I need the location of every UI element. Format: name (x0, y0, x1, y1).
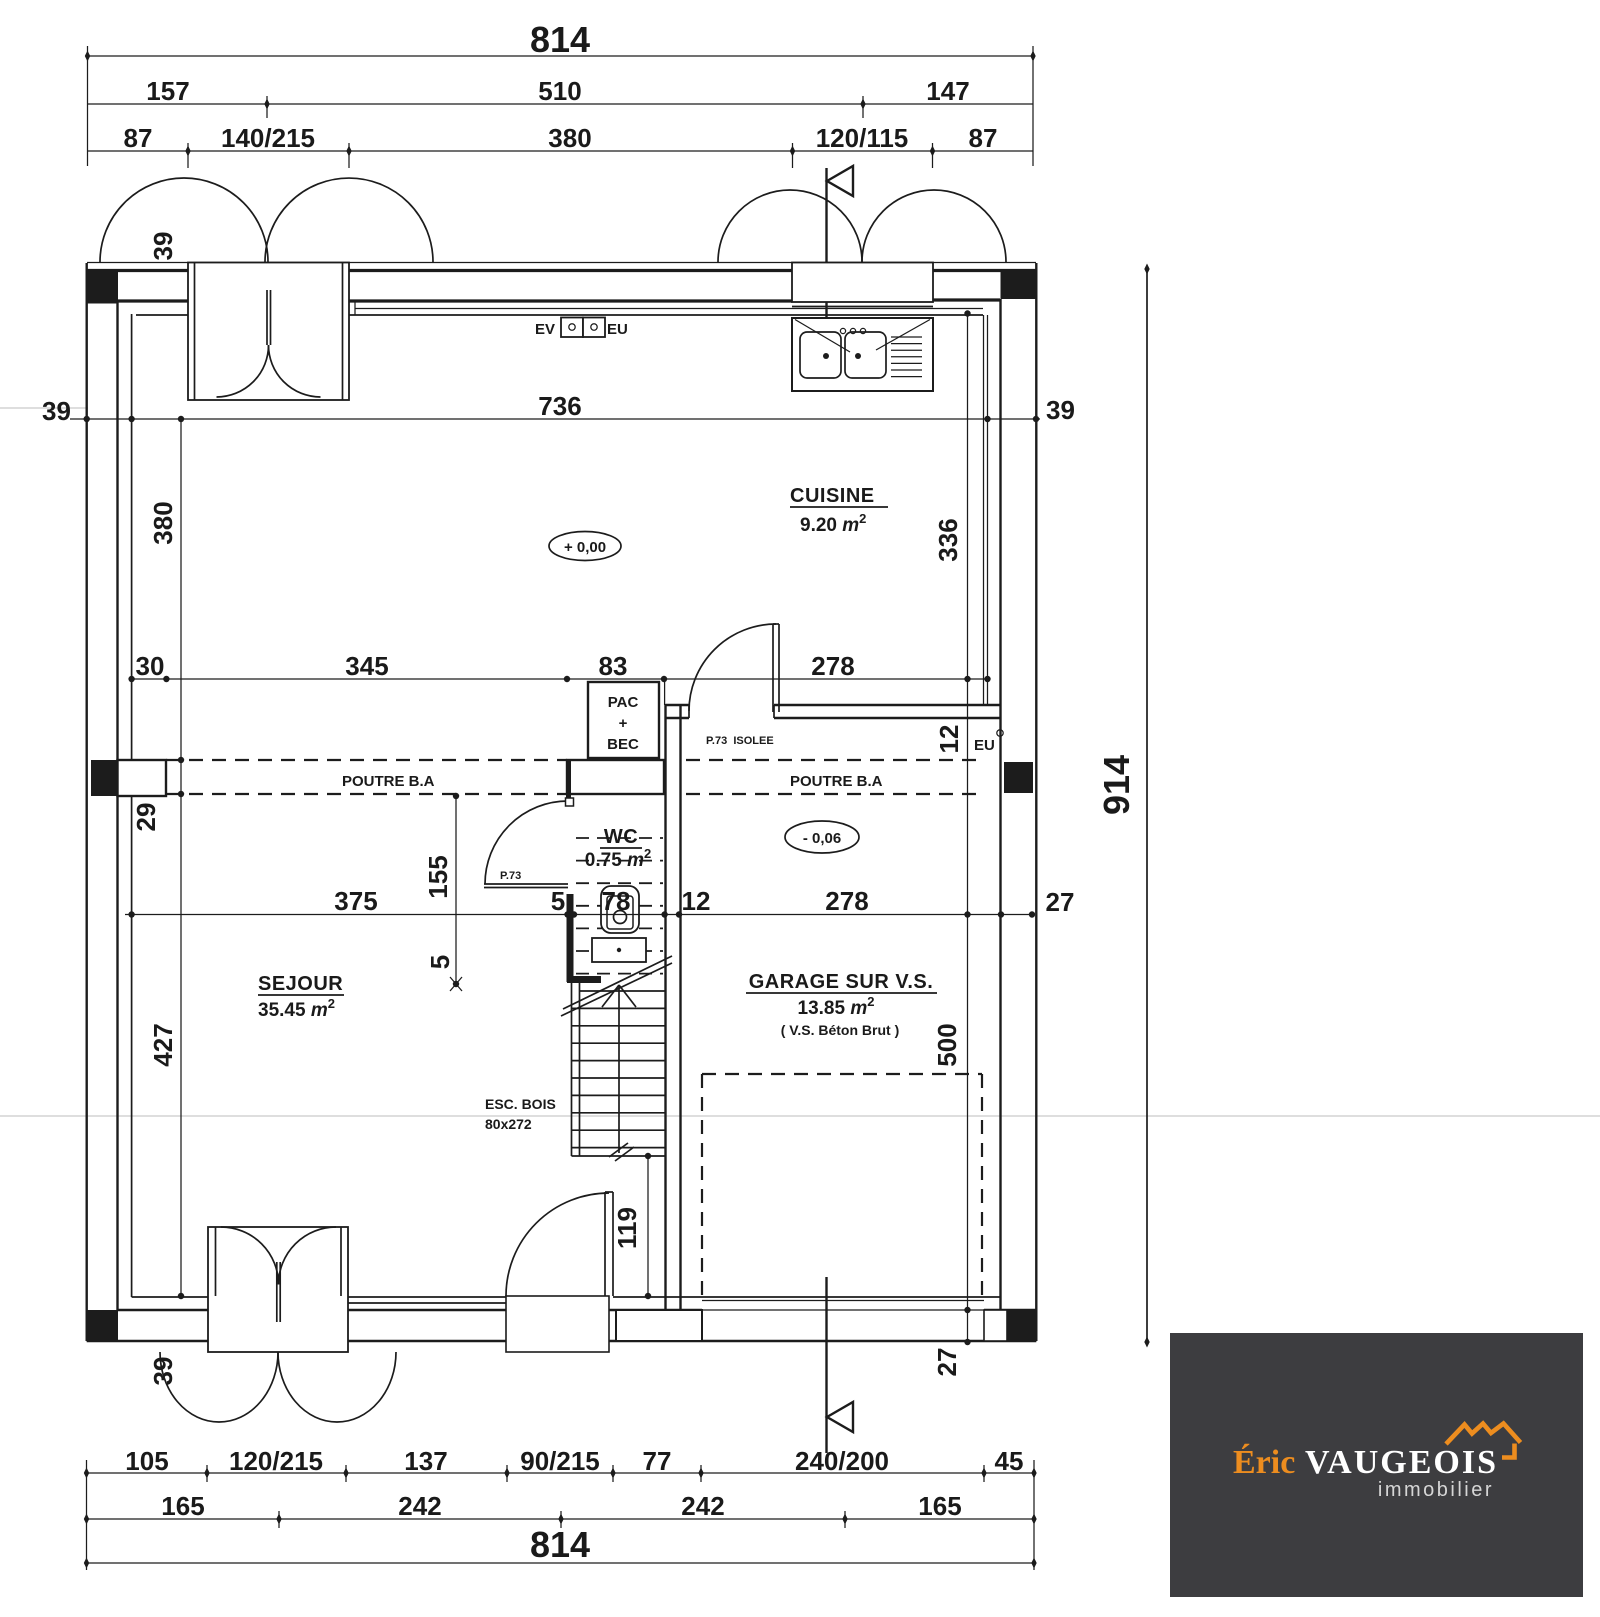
svg-text:147: 147 (926, 76, 969, 106)
svg-text:P.73: P.73 (500, 870, 521, 882)
svg-text:80x272: 80x272 (485, 1116, 532, 1132)
svg-text:165: 165 (161, 1491, 204, 1521)
svg-text:39: 39 (148, 232, 178, 261)
svg-text:90/215: 90/215 (520, 1446, 600, 1476)
svg-text:380: 380 (148, 501, 178, 544)
svg-text:POUTRE B.A: POUTRE B.A (790, 773, 883, 790)
svg-text:immobilier: immobilier (1378, 1479, 1494, 1501)
svg-text:137: 137 (404, 1446, 447, 1476)
svg-text:45: 45 (995, 1446, 1024, 1476)
svg-text:336: 336 (933, 518, 963, 561)
svg-text:29: 29 (131, 803, 161, 832)
svg-text:ESC. BOIS: ESC. BOIS (485, 1096, 556, 1112)
svg-text:35.45 m2: 35.45 m2 (258, 996, 335, 1021)
svg-text:814: 814 (530, 19, 590, 60)
svg-text:165: 165 (918, 1491, 961, 1521)
svg-text:120/115: 120/115 (816, 123, 909, 153)
svg-text:157: 157 (146, 76, 189, 106)
svg-text:39: 39 (1046, 395, 1075, 425)
svg-text:0.75 m2: 0.75 m2 (585, 846, 651, 871)
svg-text:P.73 ISOLEE: P.73 ISOLEE (706, 735, 774, 747)
svg-text:27: 27 (1046, 887, 1075, 917)
svg-text:EU: EU (974, 737, 995, 754)
svg-text:13.85 m2: 13.85 m2 (798, 994, 875, 1019)
svg-text:736: 736 (538, 391, 581, 421)
svg-text:814: 814 (530, 1524, 590, 1565)
svg-text:510: 510 (538, 76, 581, 106)
svg-text:240/200: 240/200 (795, 1446, 889, 1476)
svg-text:278: 278 (825, 886, 868, 916)
svg-text:155: 155 (423, 855, 453, 898)
svg-text:87: 87 (969, 123, 998, 153)
svg-text:375: 375 (334, 886, 377, 916)
svg-text:242: 242 (398, 1491, 441, 1521)
svg-text:78: 78 (602, 886, 631, 916)
svg-text:27: 27 (932, 1348, 962, 1377)
svg-text:SEJOUR: SEJOUR (258, 973, 343, 995)
svg-text:12: 12 (682, 886, 711, 916)
svg-text:278: 278 (811, 651, 854, 681)
svg-text:119: 119 (612, 1207, 642, 1249)
svg-text:77: 77 (643, 1446, 672, 1476)
svg-text:427: 427 (148, 1023, 178, 1066)
svg-text:30: 30 (136, 651, 165, 681)
svg-text:POUTRE B.A: POUTRE B.A (342, 773, 435, 790)
svg-text:Éric: Éric (1233, 1444, 1295, 1481)
svg-text:120/215: 120/215 (229, 1446, 323, 1476)
svg-text:105: 105 (125, 1446, 168, 1476)
svg-text:PAC: PAC (608, 694, 639, 711)
svg-text:CUISINE: CUISINE (790, 485, 875, 507)
svg-text:BEC: BEC (607, 736, 639, 753)
svg-text:140/215: 140/215 (221, 123, 315, 153)
svg-text:VAUGEOIS: VAUGEOIS (1305, 1444, 1498, 1481)
svg-text:83: 83 (599, 651, 628, 681)
svg-text:39: 39 (148, 1357, 178, 1386)
svg-text:+ 0,00: + 0,00 (564, 539, 606, 556)
svg-text:500: 500 (932, 1023, 962, 1066)
svg-text:914: 914 (1096, 755, 1137, 815)
svg-text:EU: EU (607, 321, 628, 338)
svg-text:WC: WC (604, 826, 638, 848)
svg-text:( V.S. Béton Brut ): ( V.S. Béton Brut ) (781, 1022, 900, 1038)
svg-text:5: 5 (425, 955, 455, 969)
svg-text:39: 39 (42, 396, 71, 426)
svg-text:380: 380 (548, 123, 591, 153)
svg-text:- 0,06: - 0,06 (803, 830, 841, 847)
svg-text:9.20 m2: 9.20 m2 (800, 511, 866, 536)
svg-text:EV: EV (535, 321, 555, 338)
svg-text:87: 87 (124, 123, 153, 153)
svg-text:GARAGE SUR V.S.: GARAGE SUR V.S. (749, 971, 934, 993)
svg-text:242: 242 (681, 1491, 724, 1521)
svg-text:+: + (619, 715, 628, 732)
svg-text:12: 12 (934, 725, 964, 754)
svg-text:5: 5 (551, 886, 565, 916)
svg-text:345: 345 (345, 651, 388, 681)
